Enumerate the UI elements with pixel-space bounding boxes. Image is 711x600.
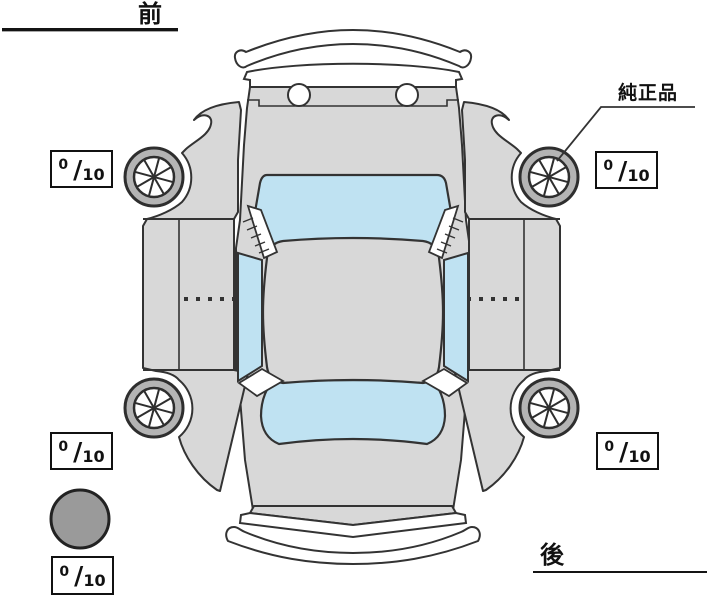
tread-depth-rear-left: 0/10 <box>50 432 113 470</box>
front-bumper-outer <box>235 30 471 67</box>
front-label: 前 <box>138 2 162 26</box>
rear-label: 後 <box>540 543 564 567</box>
tread-depth-front-left: 0/10 <box>50 150 113 188</box>
fraction-slash: / <box>73 437 82 466</box>
fraction-slash: / <box>619 437 628 466</box>
tread-value: 0 <box>58 439 68 455</box>
tread-max: 10 <box>628 447 650 466</box>
tread-max: 10 <box>83 571 105 590</box>
wheel-front-right <box>520 148 578 206</box>
rear-label-underline <box>533 571 707 573</box>
side-window-right <box>444 253 468 381</box>
wheel-rear-left <box>125 379 183 437</box>
tread-depth-rear-right: 0/10 <box>596 432 659 470</box>
rear-window <box>261 380 445 444</box>
car-top-view-illustration <box>0 0 711 600</box>
wheel-rear-right <box>520 379 578 437</box>
genuine-part-label: 純正品 <box>618 82 678 105</box>
fraction-slash: / <box>73 155 82 184</box>
tread-depth-front-right: 0/10 <box>595 151 658 189</box>
fraction-slash: / <box>618 156 627 185</box>
tread-value: 0 <box>603 158 613 174</box>
tread-value: 0 <box>604 439 614 455</box>
vehicle-condition-diagram: 前 後 純正品 0/10 0/10 0/10 0/10 0/10 <box>0 0 711 600</box>
side-window-left <box>238 253 262 381</box>
tread-value: 0 <box>58 157 68 173</box>
headlight-right <box>396 84 418 106</box>
spare-tire <box>51 490 109 548</box>
roof <box>263 238 443 383</box>
front-label-underline <box>2 28 178 32</box>
tread-depth-spare: 0/10 <box>51 556 114 595</box>
wheel-front-left <box>125 148 183 206</box>
fraction-slash: / <box>74 561 83 590</box>
headlight-left <box>288 84 310 106</box>
tread-max: 10 <box>627 166 649 185</box>
tread-max: 10 <box>82 447 104 466</box>
tread-max: 10 <box>82 165 104 184</box>
front-bumper-inner <box>244 64 462 87</box>
tread-value: 0 <box>59 564 69 580</box>
